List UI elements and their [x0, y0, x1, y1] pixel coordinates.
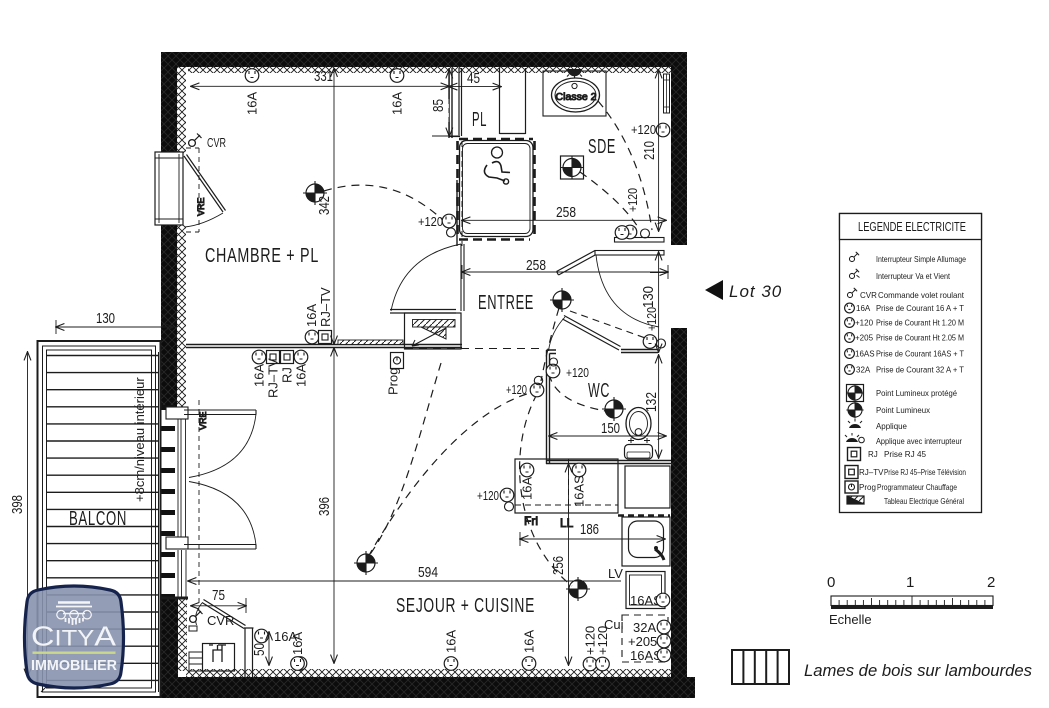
svg-text:Tableau Electrique Général: Tableau Electrique Général: [884, 496, 964, 506]
svg-text:32A: 32A: [856, 366, 871, 375]
svg-text:75: 75: [212, 587, 225, 604]
svg-text:398: 398: [9, 495, 26, 514]
svg-text:RJ: RJ: [280, 367, 295, 383]
svg-text:+8cm/niveau intérieur: +8cm/niveau intérieur: [132, 377, 147, 502]
svg-text:Applique: Applique: [876, 421, 907, 431]
svg-text:CVR: CVR: [207, 613, 234, 628]
svg-text:16A: 16A: [245, 92, 260, 115]
svg-text:SDE: SDE: [588, 136, 616, 158]
svg-text:50: 50: [251, 643, 268, 656]
svg-text:16A: 16A: [294, 364, 309, 387]
svg-text:+120: +120: [631, 122, 656, 137]
svg-text:Lot 30: Lot 30: [729, 282, 782, 301]
svg-text:130: 130: [96, 310, 115, 327]
svg-text:150: 150: [601, 420, 620, 437]
svg-text:Prise RJ 45–Prise Télévision: Prise RJ 45–Prise Télévision: [884, 467, 966, 477]
svg-text:SEJOUR + CUISINE: SEJOUR + CUISINE: [396, 595, 535, 617]
svg-text:RJ–TV: RJ–TV: [266, 358, 281, 398]
svg-text:BALCON: BALCON: [69, 508, 127, 530]
svg-text:Prise de Courant Ht 1.20 M: Prise de Courant Ht 1.20 M: [876, 318, 964, 328]
svg-text:186: 186: [580, 521, 599, 538]
svg-text:331: 331: [314, 68, 333, 85]
svg-text:Prog: Prog: [859, 483, 876, 492]
svg-text:Lames de bois sur lambourdes: Lames de bois sur lambourdes: [804, 661, 1032, 680]
svg-text:Echelle: Echelle: [829, 612, 872, 627]
svg-text:132: 132: [643, 392, 660, 412]
svg-text:16A: 16A: [304, 304, 319, 327]
svg-text:CVR: CVR: [207, 135, 226, 150]
svg-text:ENTREE: ENTREE: [478, 292, 534, 314]
svg-text:+120: +120: [418, 214, 443, 229]
svg-text:LEGENDE ELECTRICITE: LEGENDE ELECTRICITE: [858, 219, 966, 234]
svg-text:+120: +120: [506, 382, 527, 397]
svg-text:1: 1: [906, 574, 914, 591]
svg-text:396: 396: [316, 497, 333, 516]
svg-text:16A: 16A: [252, 364, 267, 387]
svg-text:258: 258: [526, 257, 546, 274]
svg-text:+120: +120: [855, 319, 874, 328]
svg-text:2: 2: [987, 574, 995, 591]
svg-text:Applique avec interrupteur: Applique avec interrupteur: [876, 436, 962, 446]
svg-text:256: 256: [550, 556, 567, 575]
svg-text:Commande volet roulant: Commande volet roulant: [878, 290, 965, 300]
svg-text:Programmateur Chauffage: Programmateur Chauffage: [877, 482, 957, 492]
svg-text:594: 594: [418, 564, 438, 581]
svg-text:VRE: VRE: [196, 197, 206, 216]
svg-text:Prise de Courant 16AS + T: Prise de Courant 16AS + T: [876, 349, 964, 359]
svg-text:342: 342: [316, 196, 333, 215]
svg-text:RJ: RJ: [868, 450, 878, 459]
svg-text:RJ–TV: RJ–TV: [318, 287, 333, 327]
svg-text:Prog: Prog: [386, 368, 401, 395]
svg-text:258: 258: [556, 204, 576, 221]
svg-text:CHAMBRE + PL: CHAMBRE + PL: [205, 245, 319, 267]
svg-text:CITYA: CITYA: [31, 621, 116, 652]
svg-text:210: 210: [641, 141, 658, 160]
svg-text:Prise RJ 45: Prise RJ 45: [884, 449, 926, 459]
svg-text:Prise de Courant 32 A + T: Prise de Courant 32 A + T: [876, 365, 964, 375]
svg-text:+205: +205: [628, 634, 657, 649]
svg-text:16AS: 16AS: [855, 350, 875, 359]
svg-text:Interrupteur Simple Allumage: Interrupteur Simple Allumage: [876, 254, 966, 264]
svg-text:16A: 16A: [856, 304, 871, 313]
svg-text:LV: LV: [608, 566, 623, 581]
svg-text:PL: PL: [472, 109, 487, 131]
svg-text:+120: +120: [644, 307, 659, 331]
svg-text:130: 130: [640, 286, 657, 308]
svg-text:16A: 16A: [290, 632, 305, 655]
svg-text:Interrupteur Va et Vient: Interrupteur Va et Vient: [876, 271, 951, 281]
svg-text:Point Lumineux: Point Lumineux: [876, 405, 931, 415]
svg-text:LL: LL: [560, 516, 574, 530]
svg-text:0: 0: [827, 574, 835, 591]
svg-text:WC: WC: [588, 380, 610, 402]
svg-text:Point Lumineux protégé: Point Lumineux protégé: [876, 388, 957, 398]
svg-text:+120: +120: [595, 626, 610, 655]
svg-text:16AS: 16AS: [572, 475, 587, 507]
svg-text:RJ–TV: RJ–TV: [859, 468, 884, 477]
svg-text:45: 45: [467, 70, 480, 87]
svg-text:+120: +120: [566, 365, 589, 380]
svg-text:16A: 16A: [444, 630, 459, 653]
svg-text:VRE: VRE: [198, 411, 208, 430]
svg-text:+205: +205: [855, 334, 874, 343]
svg-text:32A: 32A: [633, 620, 656, 635]
svg-text:CVR: CVR: [860, 291, 877, 300]
svg-text:85: 85: [430, 99, 447, 112]
svg-text:16A: 16A: [390, 92, 405, 115]
svg-text:IMMOBILIER: IMMOBILIER: [31, 657, 117, 674]
svg-text:+120: +120: [477, 488, 499, 503]
svg-text:Prise de Courant 16 A + T: Prise de Courant 16 A + T: [876, 303, 964, 313]
svg-text:16A: 16A: [520, 477, 535, 500]
svg-text:+120: +120: [625, 188, 640, 212]
svg-text:Fri: Fri: [524, 514, 538, 528]
svg-text:16A: 16A: [522, 630, 537, 653]
svg-text:Classe 2: Classe 2: [556, 91, 597, 103]
svg-text:Prise de Courant Ht 2.05 M: Prise de Courant Ht 2.05 M: [876, 333, 964, 343]
